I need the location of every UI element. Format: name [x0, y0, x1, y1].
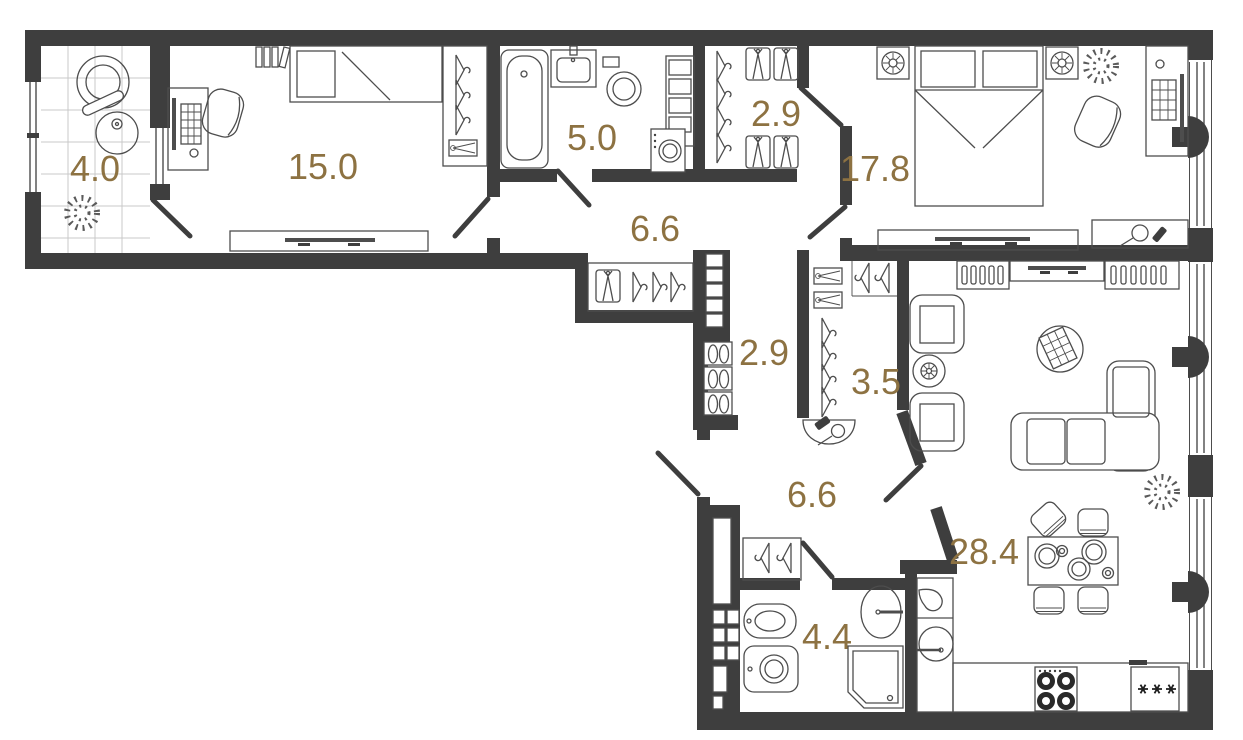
door-leaf-icon [803, 543, 832, 577]
plant-icon [1086, 51, 1116, 81]
room-label-bathroom: 5.0 [567, 117, 617, 158]
desk-chair-icon [199, 86, 246, 140]
room-label-living-kitchen: 28.4 [949, 531, 1019, 572]
single-bed-icon [290, 46, 442, 102]
nightstand-lamp-icon [1046, 47, 1078, 79]
room-bedroom-15: 15.0 [168, 46, 487, 251]
wardrobe-hanger-icon [443, 46, 487, 166]
door-leaf-icon [558, 171, 589, 205]
tv-console-icon [1010, 261, 1104, 281]
window-icon [150, 124, 170, 188]
room-label-corridor: 2.9 [739, 332, 789, 373]
room-label-entrance-hall: 6.6 [787, 474, 837, 515]
toilet-icon [603, 57, 641, 106]
bidet-icon [744, 604, 796, 638]
cooktop-icon [1035, 667, 1077, 711]
room-master-bedroom: 17.8 [840, 46, 1188, 250]
hall-wardrobe-icon [588, 263, 693, 311]
walls [25, 30, 1213, 730]
desk-icon [168, 88, 208, 170]
room-label-bathroom-lower: 4.4 [802, 616, 852, 657]
kitchen-sink-icon [917, 627, 953, 661]
books-icon [256, 47, 290, 68]
plant-icon [67, 198, 97, 228]
water-drop-icon [919, 589, 942, 610]
floor-plan-svg: 4.0 15.0 [0, 0, 1243, 740]
sideboard-slats-icon [1105, 261, 1179, 289]
room-label-master-bedroom: 17.8 [840, 148, 910, 189]
room-label-loggia: 4.0 [70, 148, 120, 189]
drawer-box-icon [814, 292, 842, 308]
rug-icon [1037, 326, 1083, 372]
double-bed-icon [915, 46, 1043, 206]
sofa-icon [1011, 361, 1159, 471]
armchair-icon [910, 295, 964, 353]
side-table-icon [913, 355, 945, 387]
shirt-icon [746, 136, 770, 168]
room-bathroom-5: 5.0 [501, 46, 694, 172]
door-leaf-icon [801, 88, 841, 125]
fridge-icon [1129, 660, 1179, 711]
hall-hanger-niche-icon [743, 538, 801, 580]
drawer-box-icon [814, 268, 842, 284]
desk-chair-icon [1070, 92, 1124, 151]
room-label-wardrobe: 3.5 [851, 361, 901, 402]
room-living-kitchen: 28.4 [910, 261, 1188, 712]
shelf-column-icon [706, 254, 723, 327]
room-label-hallway-upper: 6.6 [630, 208, 680, 249]
dressing-table-icon [1092, 220, 1188, 248]
tv-console-icon [230, 231, 428, 251]
bathtub-icon [501, 50, 548, 168]
door-leaf-icon [658, 453, 698, 494]
armchair-icon [77, 56, 129, 117]
entry-mat-icon [803, 415, 855, 445]
door-leaf-icon [886, 466, 921, 500]
window-icon [25, 78, 41, 196]
door-leaf-icon [153, 200, 190, 236]
dining-table-icon [1028, 499, 1118, 614]
plant-icon [1147, 477, 1177, 507]
sink-icon [551, 46, 596, 87]
shower-icon [848, 646, 903, 708]
door-leaf-icon [455, 199, 488, 236]
sideboard-slats-icon [957, 261, 1009, 289]
toilet-icon [744, 646, 798, 692]
room-wardrobe: 3.5 [803, 261, 901, 445]
room-label-bedroom: 15.0 [288, 146, 358, 187]
room-hallway-upper: 6.6 [588, 208, 693, 311]
room-label-closet-top: 2.9 [751, 93, 801, 134]
sink-icon [861, 586, 903, 638]
room-closet-top: 2.9 [717, 48, 801, 168]
floor-plan: 4.0 15.0 [0, 0, 1243, 740]
shoe-shelf-icon [704, 342, 732, 415]
room-loggia: 4.0 [41, 46, 150, 253]
shirt-icon [774, 136, 798, 168]
shirt-icon [774, 48, 798, 80]
nightstand-lamp-icon [877, 47, 909, 79]
door-leaf-icon [810, 207, 845, 237]
desk-icon [1146, 46, 1188, 156]
washing-machine-icon [651, 129, 685, 172]
shirt-icon [746, 48, 770, 80]
